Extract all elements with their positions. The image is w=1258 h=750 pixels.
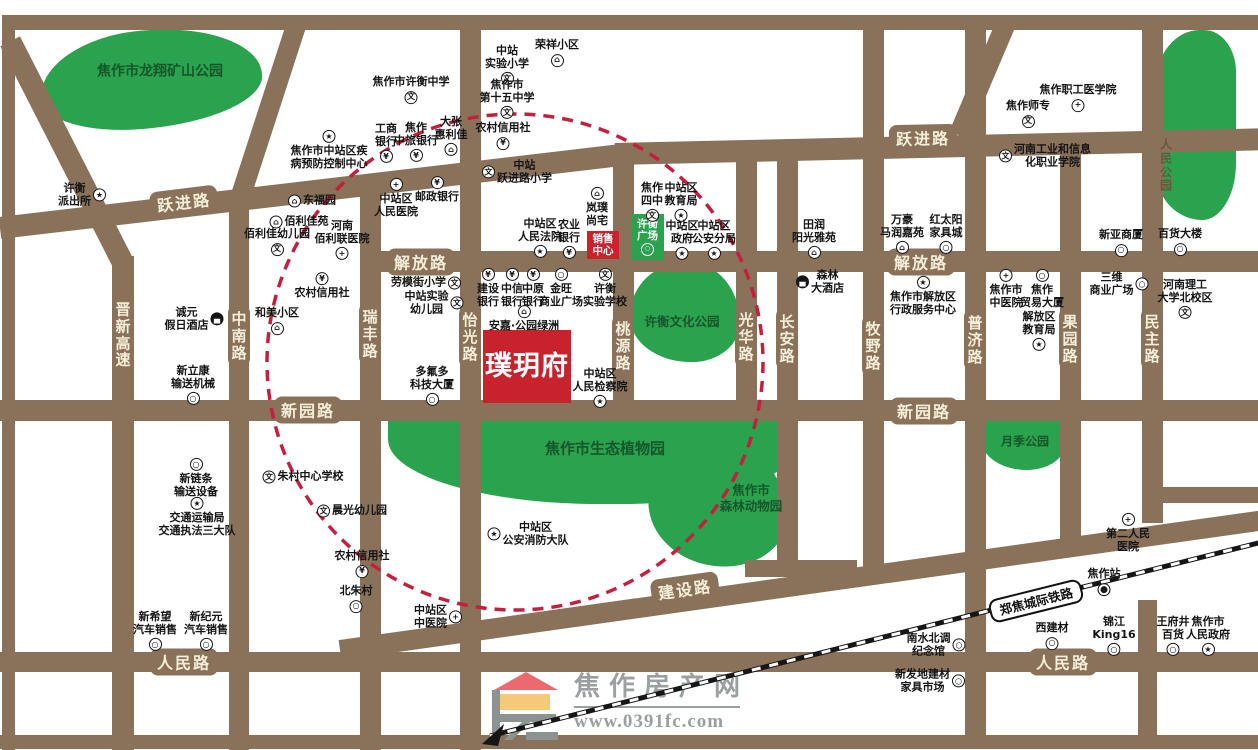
poi: ★焦作市中站区疾 病预防控制中心 bbox=[291, 130, 368, 170]
biz-icon: ○ bbox=[1167, 643, 1180, 656]
road-label-vertical: 长安路 bbox=[776, 308, 798, 370]
school-icon: 文 bbox=[1022, 115, 1035, 128]
school-icon: 文 bbox=[501, 106, 514, 119]
poi: ★交通运输局 交通执法三大队 bbox=[159, 497, 236, 537]
hospital-icon: + bbox=[1122, 513, 1135, 526]
estate-icon: ⌂ bbox=[551, 54, 564, 67]
poi-label: 东福园 bbox=[303, 195, 336, 208]
plaza-icon: ○ bbox=[641, 243, 654, 256]
school-icon: 文 bbox=[1179, 306, 1192, 319]
poi: 新亚商厦○ bbox=[1099, 229, 1143, 257]
bank-icon: ¥ bbox=[563, 246, 576, 259]
poi-label: 安嘉·公园绿洲 bbox=[489, 320, 559, 333]
road-left-border bbox=[2, 15, 15, 750]
poi-label: 晨光幼儿园 bbox=[332, 505, 387, 518]
poi-label: 中站区 人民医院 bbox=[374, 193, 418, 218]
poi-label: 焦作 贸易大厦 bbox=[1020, 284, 1064, 309]
road-label-vertical: 瑞丰路 bbox=[359, 303, 381, 365]
poi: 文朱村中心学校 bbox=[263, 471, 344, 484]
poi: 许衡 派出所★ bbox=[58, 182, 106, 207]
bank-icon: ¥ bbox=[431, 176, 444, 189]
poi-label: 中站区 教育局 bbox=[665, 182, 698, 207]
poi: 文中站 跃进路小学 bbox=[482, 159, 552, 184]
map-canvas: 璞玥府 销售 中心 许衡 广场 ○ 郑焦城际铁路 焦作房产网 www.0391f… bbox=[0, 0, 1258, 750]
poi: 焦作市 第十五中学文 bbox=[480, 79, 535, 119]
hotel-icon: ▄ bbox=[211, 313, 224, 326]
poi: ¥农村信用社 bbox=[295, 272, 350, 300]
park-label: 焦作市 森林动物园 bbox=[720, 482, 783, 513]
school-icon: 文 bbox=[646, 209, 659, 222]
poi: +焦作市 中医院 bbox=[990, 269, 1023, 309]
poi: ○新链条 输送设备 bbox=[174, 458, 218, 498]
road-label: 跃进路 bbox=[889, 124, 957, 152]
poi-label: 万豪 马润嘉苑 bbox=[880, 214, 924, 239]
estate-icon: ⌂ bbox=[445, 143, 458, 156]
poi-label: 佰利佳幼儿园 bbox=[244, 228, 310, 241]
road-label-vertical: 普济路 bbox=[964, 309, 986, 371]
poi: 焦作师专文 bbox=[1006, 100, 1050, 128]
poi: ⌂岚璞 尚宅 bbox=[586, 187, 608, 227]
estate-icon: ⌂ bbox=[896, 241, 909, 254]
poi: ★中站区 公安消防大队 bbox=[488, 521, 569, 546]
poi-label: 解放区 教育局 bbox=[1023, 311, 1056, 336]
bank-icon: ¥ bbox=[356, 565, 369, 578]
station-icon bbox=[1098, 583, 1111, 596]
poi: 焦作 中旅银行¥ bbox=[394, 122, 438, 162]
poi-label: 王府井 百货 bbox=[1157, 616, 1190, 641]
estate-icon: ⌂ bbox=[518, 305, 531, 318]
poi-label: 许衡 实验学校 bbox=[583, 283, 627, 308]
road-zoo-south-segment bbox=[745, 560, 857, 577]
poi: 河南 佰利联医院+ bbox=[315, 220, 370, 260]
poi-label: 焦作市中站区疾 病预防控制中心 bbox=[291, 145, 368, 170]
gov-icon: ★ bbox=[917, 276, 930, 289]
poi-label: 百货大楼 bbox=[1158, 228, 1202, 241]
poi: 焦作 四中文 bbox=[641, 182, 663, 222]
poi-label: 岚璞 尚宅 bbox=[586, 202, 608, 227]
hospital-icon: + bbox=[390, 178, 403, 191]
poi: ⌂安嘉·公园绿洲 bbox=[489, 305, 559, 333]
project-block-puyuefu: 璞玥府 bbox=[483, 330, 571, 403]
biz-icon: ○ bbox=[426, 393, 439, 406]
logo-url: www.0391fc.com bbox=[574, 711, 749, 733]
road-top-border bbox=[8, 15, 1258, 30]
poi-label: 中站区 中医院 bbox=[414, 604, 447, 629]
poi: 万豪 马润嘉苑⌂ bbox=[880, 214, 924, 254]
biz-icon: ○ bbox=[200, 638, 213, 651]
poi: 新发地建材 家具市场○ bbox=[895, 668, 965, 693]
poi: ¥建设 银行 bbox=[477, 268, 499, 308]
logo-text: 焦作房产网 www.0391fc.com bbox=[574, 670, 749, 740]
logo-house-icon bbox=[490, 670, 562, 740]
biz-icon: ○ bbox=[187, 392, 200, 405]
railway-name-badge: 郑焦城际铁路 bbox=[987, 578, 1085, 624]
poi-label: 农村信用社 bbox=[476, 122, 531, 135]
poi-label: 焦作 中旅银行 bbox=[394, 122, 438, 147]
poi: +第二人民 医院 bbox=[1106, 513, 1150, 553]
road-label-vertical: 光华路 bbox=[735, 306, 757, 368]
estate-icon: ⌂ bbox=[288, 195, 301, 208]
poi-label: 南水北调 纪念馆 bbox=[907, 632, 951, 657]
poi: 荣祥小区⌂ bbox=[535, 39, 579, 67]
poi: 新纪元 汽车销售○ bbox=[184, 611, 228, 651]
park-label: 许衡文化公园 bbox=[644, 314, 719, 330]
poi: 文晨光幼儿园 bbox=[317, 505, 387, 518]
poi: ▄森林 大酒店 bbox=[796, 269, 844, 294]
biz-icon: ○ bbox=[1046, 637, 1059, 650]
poi-label: 诚元 假日酒店 bbox=[165, 306, 209, 331]
poi-label: 焦作市解放区 行政服务中心 bbox=[890, 291, 956, 316]
road-label: 人民路 bbox=[150, 649, 218, 676]
poi-label: 邮政银行 bbox=[415, 191, 459, 204]
poi-label: 中站实验 幼儿园 bbox=[405, 290, 449, 315]
poi-label: 新纪元 汽车销售 bbox=[184, 611, 228, 636]
road-puji bbox=[965, 18, 986, 735]
poi: 多氟多 科技大厦○ bbox=[410, 366, 454, 406]
poi-label: 中站区 公安消防大队 bbox=[503, 521, 569, 546]
poi: 中站区 人民法院★ bbox=[518, 218, 562, 258]
road-label: 解放路 bbox=[387, 249, 455, 276]
road-zhongnan bbox=[229, 198, 249, 750]
poi-label: 焦作市 中医院 bbox=[990, 284, 1023, 309]
gov-icon: ★ bbox=[323, 130, 336, 143]
poi: 农村信用社¥ bbox=[476, 122, 531, 150]
poi-label: 河南工业和信息 化职业学院 bbox=[1014, 143, 1091, 168]
poi-label: 红太阳 家具城 bbox=[930, 214, 963, 239]
biz-icon: ○ bbox=[940, 241, 953, 254]
road-muye bbox=[863, 18, 884, 575]
poi-label: 新发地建材 家具市场 bbox=[895, 668, 950, 693]
poi: 文许衡 实验学校 bbox=[583, 268, 627, 308]
poi: 劳模街小学文 bbox=[391, 277, 461, 290]
road-ruifeng bbox=[360, 186, 381, 750]
biz-icon: ○ bbox=[149, 638, 162, 651]
poi-label: 农村信用社 bbox=[335, 550, 390, 563]
biz-icon: ○ bbox=[1115, 244, 1128, 257]
poi-label: 许衡 派出所 bbox=[58, 182, 91, 207]
road-label-vertical: 果园路 bbox=[1059, 308, 1081, 370]
poi: 解放区 教育局★ bbox=[1023, 311, 1056, 351]
poi-label: 中站区 人民检察院 bbox=[573, 368, 628, 393]
biz-icon: ○ bbox=[1108, 643, 1121, 656]
poi-label: 焦作 四中 bbox=[641, 182, 663, 207]
school-icon: 文 bbox=[451, 297, 464, 310]
poi-label: 中站区 公安分局 bbox=[692, 220, 736, 245]
poi: 佰利佳幼儿园文 bbox=[244, 228, 310, 256]
poi-label: 农村信用社 bbox=[295, 287, 350, 300]
estate-icon: ⌂ bbox=[271, 322, 284, 335]
poi-label: 锦江 King16 bbox=[1092, 616, 1135, 641]
poi: 百货大楼○ bbox=[1158, 228, 1202, 256]
hospital-icon: + bbox=[449, 611, 462, 624]
road-label: 新园路 bbox=[890, 398, 958, 425]
park-label: 月季公园 bbox=[1001, 435, 1049, 450]
bank-icon: ¥ bbox=[497, 137, 510, 150]
sales-center-box: 销售 中心 bbox=[587, 231, 619, 259]
poi: 北朱村○ bbox=[340, 585, 373, 613]
poi-label: 多氟多 科技大厦 bbox=[410, 366, 454, 391]
bank-icon: ¥ bbox=[316, 272, 329, 285]
road-label: 新园路 bbox=[274, 397, 342, 424]
poi-label: 北朱村 bbox=[340, 585, 373, 598]
poi-label: 田润 阳光雅苑 bbox=[792, 219, 836, 244]
gov-icon: ★ bbox=[1202, 643, 1215, 656]
poi-label: 中站区 人民法院 bbox=[518, 218, 562, 243]
poi: 三维 商业广场○ bbox=[1090, 271, 1149, 296]
bank-icon: ¥ bbox=[410, 149, 423, 162]
gov-icon: ★ bbox=[191, 497, 204, 510]
poi: 大张 惠利佳⌂ bbox=[435, 116, 468, 156]
poi-label: 和美小区 bbox=[255, 307, 299, 320]
poi: ★焦作市解放区 行政服务中心 bbox=[890, 276, 956, 316]
poi-label: 中站 跃进路小学 bbox=[497, 159, 552, 184]
school-icon: 文 bbox=[271, 243, 284, 256]
poi: 中站区 中医院+ bbox=[414, 604, 462, 629]
poi: 锦江 King16○ bbox=[1092, 616, 1135, 656]
poi: 中站区 公安分局★ bbox=[692, 220, 736, 260]
park-label: 焦作市生态植物园 bbox=[545, 440, 665, 459]
biz-icon: ○ bbox=[953, 639, 966, 652]
biz-icon: ○ bbox=[350, 600, 363, 613]
road-guanghua bbox=[736, 152, 757, 421]
bank-icon: ¥ bbox=[527, 268, 540, 281]
road-label-vertical: 牧野路 bbox=[862, 315, 884, 377]
poi: 河南理工 大学北校区文 bbox=[1158, 279, 1213, 319]
gov-icon: ★ bbox=[534, 245, 547, 258]
hotel-icon: ▄ bbox=[796, 276, 809, 289]
park-area bbox=[630, 262, 740, 362]
poi: 新立康 输送机械○ bbox=[171, 365, 215, 405]
poi: ⌂东福园 bbox=[288, 195, 336, 208]
biz-icon: ○ bbox=[952, 675, 965, 688]
gov-icon: ★ bbox=[594, 395, 607, 408]
school-icon: 文 bbox=[263, 471, 276, 484]
gov-icon: ★ bbox=[488, 528, 501, 541]
bank-icon: ¥ bbox=[482, 268, 495, 281]
site-logo: 焦作房产网 www.0391fc.com bbox=[490, 670, 749, 740]
poi-label: 新立康 输送机械 bbox=[171, 365, 215, 390]
park-label: 焦作市龙翔矿山公园 bbox=[97, 63, 223, 81]
poi: 诚元 假日酒店▄ bbox=[165, 306, 224, 331]
poi-label: 新亚商厦 bbox=[1099, 229, 1143, 242]
poi: 中站实验 幼儿园文 bbox=[405, 290, 464, 315]
poi-label: 朱村中心学校 bbox=[278, 471, 344, 484]
poi: 红太阳 家具城○ bbox=[930, 214, 963, 254]
poi: 焦作职工医学院+ bbox=[1040, 84, 1117, 112]
poi-label: 第二人民 医院 bbox=[1106, 528, 1150, 553]
poi-label: 中站 实验小学 bbox=[485, 45, 529, 70]
hospital-icon: + bbox=[1072, 99, 1085, 112]
poi: 西建材○ bbox=[1036, 622, 1069, 650]
poi-label: 森林 大酒店 bbox=[811, 269, 844, 294]
poi: 新希望 汽车销售○ bbox=[133, 611, 177, 651]
bank-icon: ¥ bbox=[380, 150, 393, 163]
poi: 焦作站 bbox=[1088, 568, 1121, 596]
gov-icon: ★ bbox=[676, 247, 689, 260]
estate-icon: ⌂ bbox=[591, 187, 604, 200]
poi-label: 焦作市许衡中学 bbox=[373, 76, 450, 89]
poi: 文河南工业和信息 化职业学院 bbox=[999, 143, 1091, 168]
poi-label: 新希望 汽车销售 bbox=[133, 611, 177, 636]
road-zhongnan-connector bbox=[230, 16, 308, 203]
road-label-vertical: 中南路 bbox=[228, 305, 250, 367]
poi-label: 荣祥小区 bbox=[535, 39, 579, 52]
poi-label: 交通运输局 交通执法三大队 bbox=[159, 512, 236, 537]
gov-icon: ★ bbox=[1033, 338, 1046, 351]
poi: ¥邮政银行 bbox=[415, 176, 459, 204]
biz-icon: ○ bbox=[1136, 278, 1149, 291]
poi: 田润 阳光雅苑⌂ bbox=[792, 219, 836, 259]
school-icon: 文 bbox=[599, 268, 612, 281]
school-icon: 文 bbox=[405, 91, 418, 104]
poi-label: 三维 商业广场 bbox=[1090, 271, 1134, 296]
estate-icon: ⌂ bbox=[808, 246, 821, 259]
poi-label: 劳模街小学 bbox=[391, 277, 446, 290]
logo-title: 焦作房产网 bbox=[574, 670, 749, 704]
poi-label: 焦作师专 bbox=[1006, 100, 1050, 113]
poi: ¥中信 银行 bbox=[501, 268, 523, 308]
school-icon: 文 bbox=[317, 505, 330, 518]
poi-label: 农业 银行 bbox=[558, 219, 580, 244]
poi-label: 大张 惠利佳 bbox=[435, 116, 468, 141]
gov-icon: ★ bbox=[93, 189, 106, 202]
poi-label: 新链条 输送设备 bbox=[174, 473, 218, 498]
poi: 焦作市许衡中学文 bbox=[373, 76, 450, 104]
poi: 农业 银行¥ bbox=[558, 219, 580, 259]
poi: 中站区 教育局★ bbox=[665, 182, 698, 222]
project-name: 璞玥府 bbox=[485, 353, 569, 380]
biz-icon: ○ bbox=[1174, 243, 1187, 256]
poi: 中站区 人民检察院★ bbox=[573, 368, 628, 408]
school-icon: 文 bbox=[999, 150, 1012, 163]
logo-divider bbox=[574, 706, 740, 708]
poi: 王府井 百货○ bbox=[1157, 616, 1190, 656]
poi: 南水北调 纪念馆○ bbox=[907, 632, 966, 657]
poi-label: 焦作站 bbox=[1088, 568, 1121, 581]
poi: 和美小区⌂ bbox=[255, 307, 299, 335]
school-icon: 文 bbox=[482, 166, 495, 179]
hospital-icon: + bbox=[1000, 269, 1013, 282]
poi: 焦作市 人民政府★ bbox=[1186, 616, 1230, 656]
biz-icon: ○ bbox=[555, 268, 568, 281]
road-label: 人民路 bbox=[1029, 649, 1097, 676]
poi: +中站区 人民医院 bbox=[374, 178, 418, 218]
poi-label: 焦作职工医学院 bbox=[1040, 84, 1117, 97]
poi-label: 河南理工 大学北校区 bbox=[1158, 279, 1213, 304]
road-label-vertical: 晋新高速 bbox=[112, 295, 134, 374]
sales-center-label: 销售 中心 bbox=[593, 233, 614, 257]
gov-icon: ★ bbox=[708, 247, 721, 260]
poi: ○金旺 商业广场 bbox=[539, 268, 583, 308]
poi-label: 焦作市 第十五中学 bbox=[480, 79, 535, 104]
poi-label: 河南 佰利联医院 bbox=[315, 220, 370, 245]
poi: 农村信用社¥ bbox=[335, 550, 390, 578]
bank-icon: ¥ bbox=[506, 268, 519, 281]
poi-label: 西建材 bbox=[1036, 622, 1069, 635]
poi: ○焦作 贸易大厦 bbox=[1020, 269, 1064, 309]
school-icon: 文 bbox=[448, 277, 461, 290]
biz-icon: ○ bbox=[1036, 269, 1049, 282]
park-label: 人民公园 bbox=[1159, 138, 1173, 193]
biz-icon: ○ bbox=[190, 458, 203, 471]
hospital-icon: + bbox=[336, 247, 349, 260]
poi-label: 焦作市 人民政府 bbox=[1186, 616, 1230, 641]
road-minzhu-south bbox=[1138, 600, 1157, 735]
